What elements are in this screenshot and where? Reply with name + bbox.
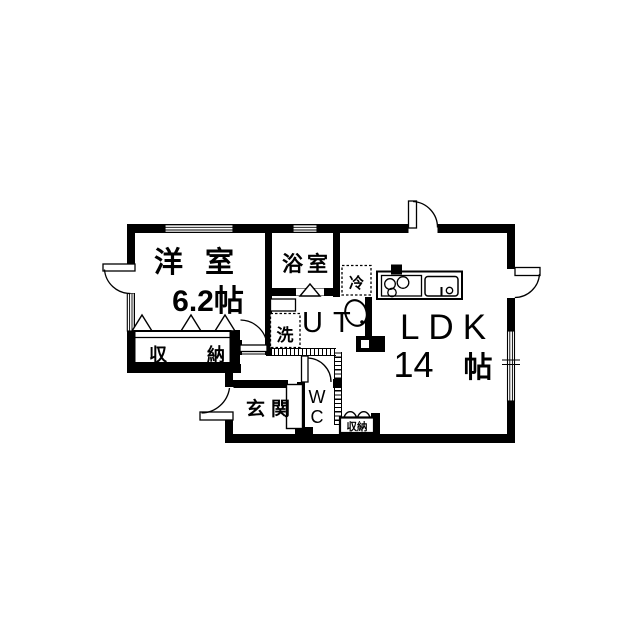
door-wc: [302, 356, 332, 382]
room-label-bath: 浴室: [272, 248, 338, 278]
room-label-ldk: LDK: [388, 308, 498, 348]
wc-line1: W: [303, 387, 331, 407]
window-right-ldk: [502, 331, 520, 401]
room-area-western: 6.2帖: [148, 276, 268, 320]
room-area-ldk: 14 帖: [388, 344, 498, 386]
window-top-bath: [293, 225, 317, 233]
ldk-area-value: 14: [393, 344, 433, 386]
kitchen-sink: [425, 277, 458, 297]
room-label-small-closet: 収納: [340, 419, 374, 434]
room-label-wc: W C: [303, 387, 331, 427]
fixture-label-fridge: 冷: [342, 272, 371, 293]
door-right-ldk: [515, 268, 540, 298]
fixture-label-washer: 洗: [270, 321, 300, 346]
floorplan-canvas: 洋室 6.2帖 浴室 UT LDK 14 帖 玄関 W C 収納 収納 冷 洗: [0, 0, 640, 639]
window-top-western: [165, 225, 233, 233]
range-hood: [391, 265, 402, 275]
room-label-utility: UT: [292, 307, 356, 340]
window-left-western: [127, 293, 134, 331]
room-label-closet: 収納: [133, 341, 231, 367]
wc-line2: C: [303, 407, 331, 427]
room-label-entrance: 玄関: [233, 394, 303, 421]
stove: [382, 276, 422, 297]
ldk-area-unit: 帖: [464, 344, 493, 386]
room-label-western: 洋室: [145, 239, 265, 281]
